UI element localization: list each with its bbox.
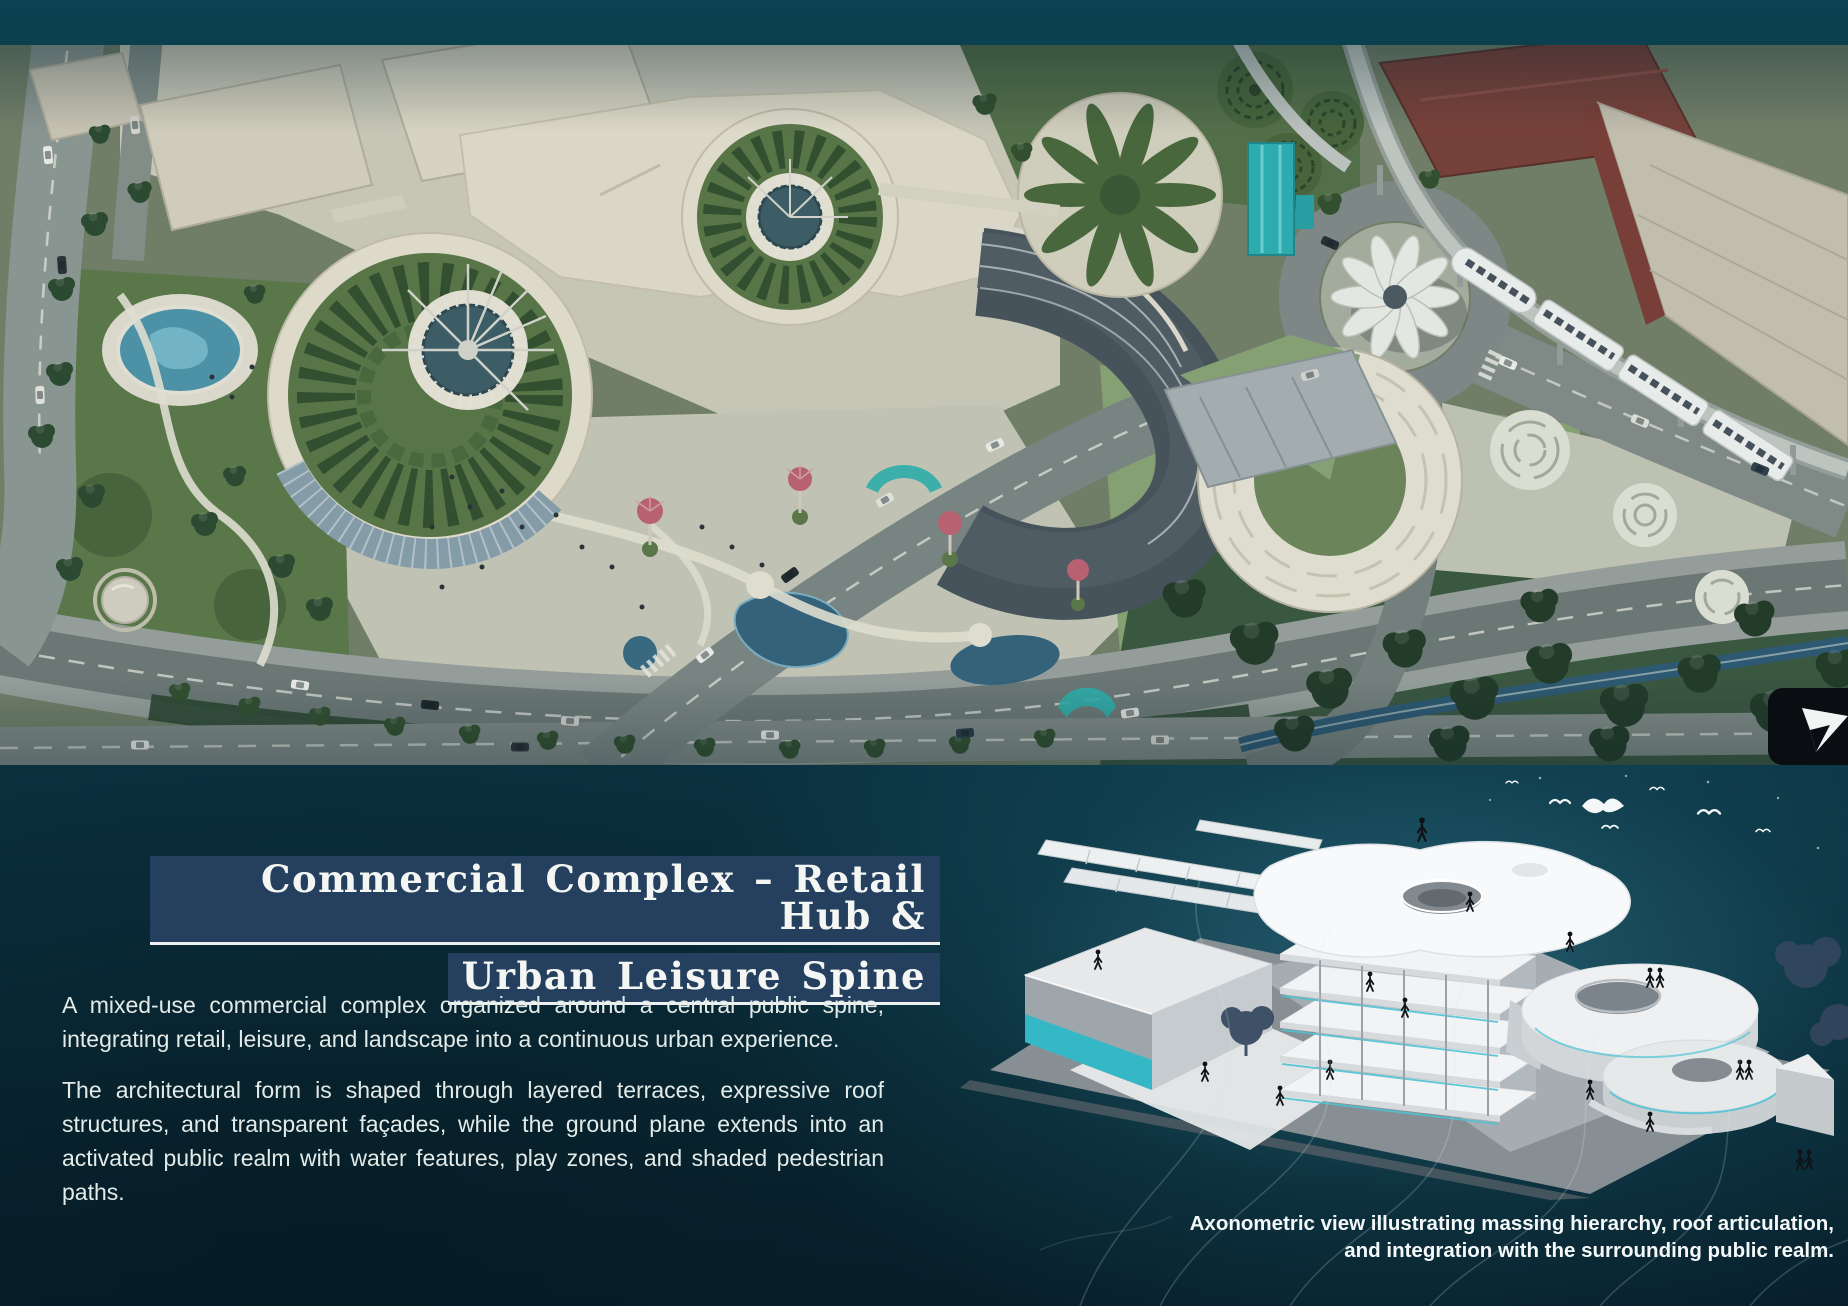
aerial-render-graphic (0, 45, 1848, 765)
render-watermark-badge (1768, 688, 1848, 765)
paragraph-overview: A mixed-use commercial complex organized… (62, 988, 884, 1056)
body-copy: A mixed-use commercial complex organized… (62, 988, 884, 1226)
axonometric-illustration (950, 770, 1848, 1200)
aerial-render (0, 45, 1848, 765)
render-watermark-icon (1768, 688, 1848, 765)
paragraph-architecture: The architectural form is shaped through… (62, 1073, 884, 1209)
figure-caption-line-2: and integration with the surrounding pub… (1134, 1237, 1834, 1264)
axonometric-graphic (950, 770, 1848, 1200)
figure-caption-line-1: Axonometric view illustrating massing hi… (1134, 1210, 1834, 1237)
ax-roof-plate (1254, 842, 1630, 957)
figure-caption: Axonometric view illustrating massing hi… (1134, 1210, 1834, 1264)
slide-page: Commercial Complex – Retail Hub & Urban … (0, 0, 1848, 1306)
page-title-line-1: Commercial Complex – Retail Hub & (150, 856, 940, 945)
